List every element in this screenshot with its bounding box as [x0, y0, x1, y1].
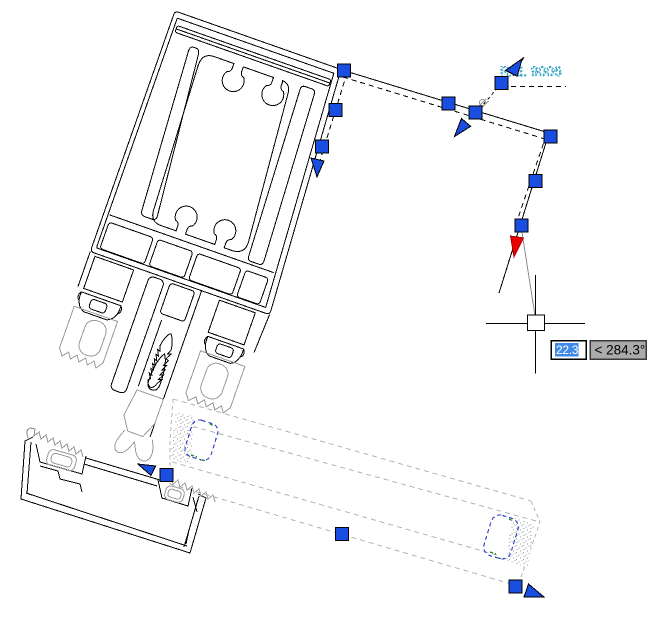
svg-text:22.3: 22.3: [556, 343, 579, 357]
svg-text:< 284.3°: < 284.3°: [595, 343, 646, 358]
